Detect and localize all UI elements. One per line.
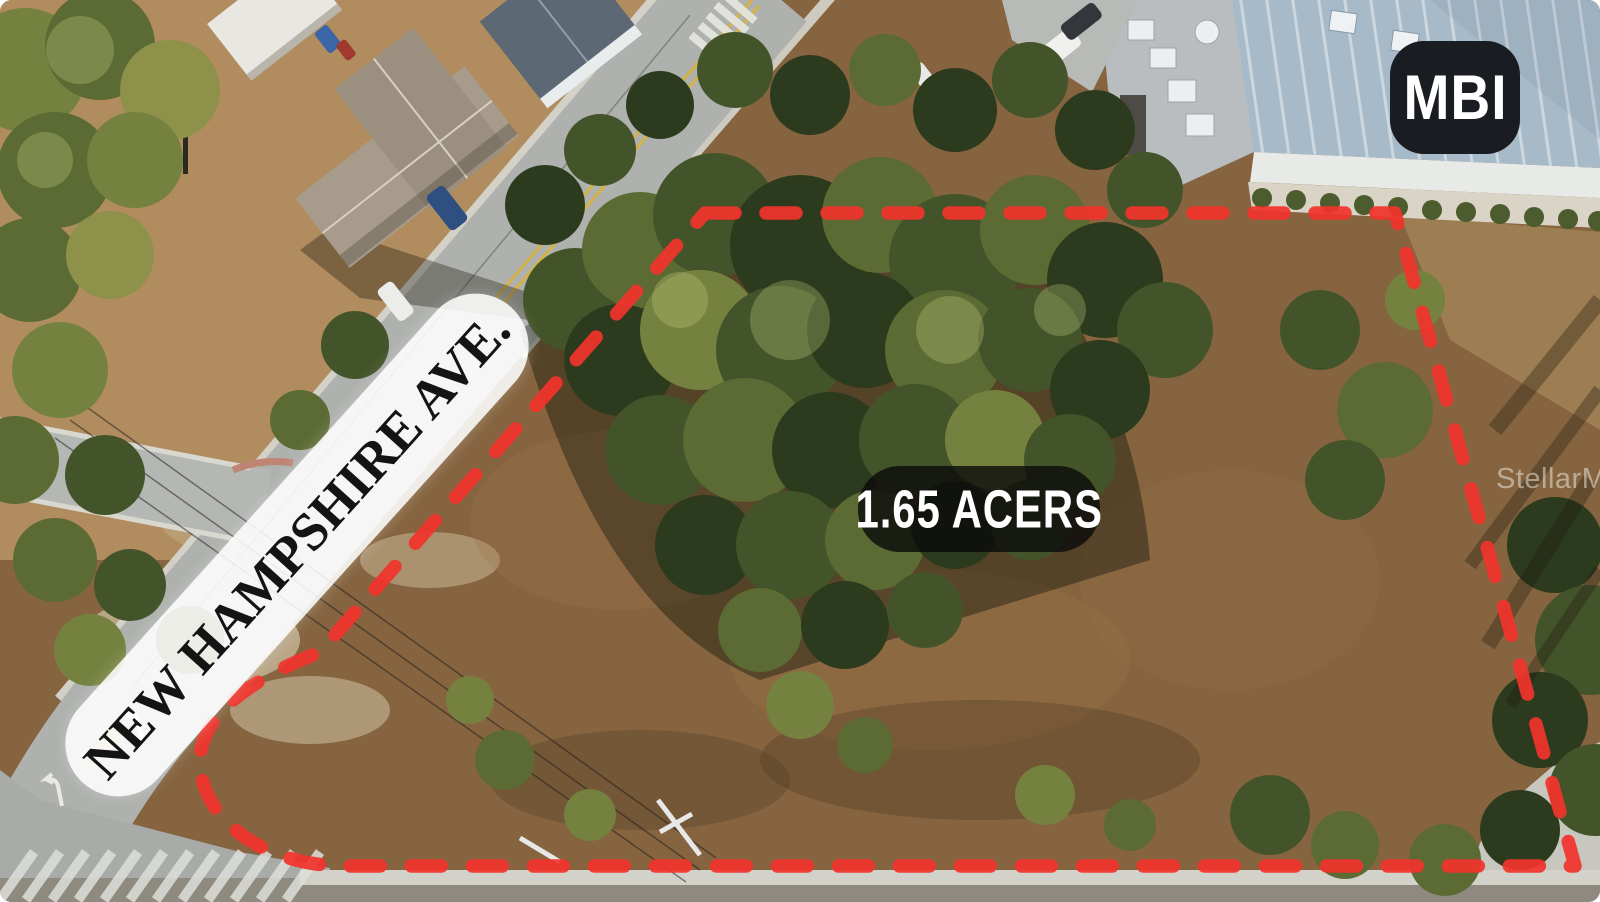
acreage-label: 1.65 ACERS bbox=[855, 478, 1102, 541]
acreage-badge: 1.65 ACERS bbox=[858, 466, 1100, 552]
mls-watermark-label: StellarMLS bbox=[1496, 463, 1600, 496]
brand-badge: MBI bbox=[1390, 41, 1520, 154]
aerial-lot-photo: NEW HAMPSHIRE AVE. 1.65 ACERS MBI Stella… bbox=[0, 0, 1600, 902]
mls-watermark: StellarMLS bbox=[1496, 462, 1600, 496]
brand-badge-label: MBI bbox=[1403, 61, 1507, 133]
aerial-scene bbox=[0, 0, 1600, 902]
